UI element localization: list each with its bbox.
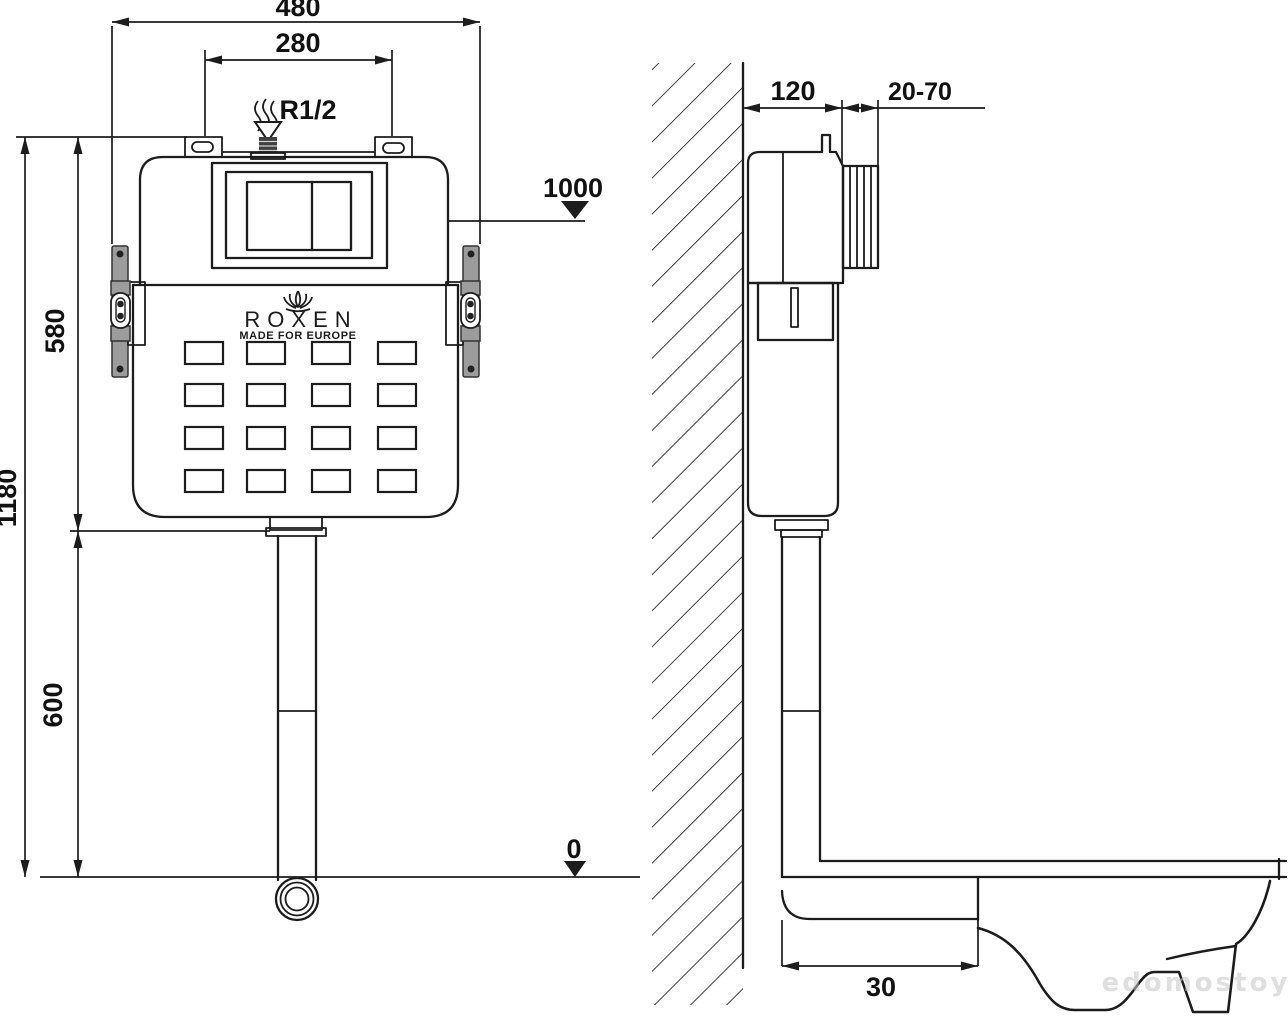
rib bbox=[185, 427, 223, 449]
dim-below-tank-label: 600 bbox=[38, 682, 68, 727]
dim-frame-depth: 120 bbox=[743, 76, 842, 163]
brand-block: ROXEN MADE FOR EUROPE bbox=[239, 291, 357, 342]
dim-panel-adjust: 20-70 bbox=[842, 78, 985, 165]
installation-drawing: 0 480 280 bbox=[0, 0, 1288, 1017]
cistern-profile bbox=[748, 135, 878, 877]
tank-lower-profile bbox=[748, 283, 838, 516]
dim-tank-height-label: 580 bbox=[40, 308, 70, 353]
floor-level-label: 0 bbox=[566, 834, 581, 864]
drawing-page: 0 480 280 bbox=[0, 0, 1288, 1017]
service-slot bbox=[791, 288, 798, 327]
floor-level-marker-icon bbox=[564, 861, 586, 877]
pipe-elbow-outlet bbox=[276, 878, 318, 920]
rail-bolt-hole bbox=[468, 251, 475, 258]
floor-level: 0 bbox=[40, 834, 640, 877]
inlet-thread-label: R1/2 bbox=[279, 95, 336, 125]
level-marker-panel: 1000 bbox=[448, 173, 603, 221]
wall-section bbox=[652, 63, 743, 1005]
rib bbox=[185, 470, 223, 492]
dim-drain-offset: 30 bbox=[782, 920, 978, 1002]
dim-frame-depth-label: 120 bbox=[770, 76, 815, 106]
rib bbox=[247, 427, 285, 449]
tank-upper-body bbox=[140, 157, 448, 285]
rib bbox=[378, 427, 416, 449]
front-view: 0 480 280 bbox=[0, 0, 640, 920]
rib bbox=[312, 470, 350, 492]
rib bbox=[378, 342, 416, 364]
pipe-collar bbox=[775, 520, 828, 530]
rib bbox=[247, 342, 285, 364]
access-panel-frame bbox=[212, 163, 387, 268]
outlet-pipe bbox=[782, 859, 1286, 920]
mounting-slot bbox=[192, 142, 213, 152]
mounting-rail-right bbox=[446, 246, 480, 377]
rib bbox=[185, 384, 223, 406]
dim-panel-adjust-label: 20-70 bbox=[888, 78, 952, 106]
side-view: 120 20-70 bbox=[652, 63, 1288, 1012]
wall-hatching bbox=[652, 63, 743, 1005]
rib bbox=[247, 470, 285, 492]
rail-bolt-hole bbox=[117, 251, 124, 258]
dim-overall-height-label: 1180 bbox=[0, 469, 22, 528]
brand-tagline: MADE FOR EUROPE bbox=[239, 330, 356, 342]
level-marker-icon bbox=[561, 201, 589, 219]
watermark-text: edomostoy bbox=[1102, 968, 1288, 998]
level-panel-label: 1000 bbox=[543, 173, 603, 203]
rib bbox=[247, 384, 285, 406]
service-window bbox=[758, 283, 833, 340]
cistern-tank: ROXEN MADE FOR EUROPE bbox=[133, 137, 458, 920]
rib bbox=[185, 342, 223, 364]
mounting-tab-right bbox=[375, 137, 412, 157]
dim-overall-width-label: 480 bbox=[275, 0, 320, 22]
brand-logo-text: ROXEN bbox=[244, 307, 357, 332]
rib bbox=[312, 384, 350, 406]
dim-tank-height: 580 bbox=[40, 137, 270, 531]
dim-overall-height: 1180 bbox=[0, 137, 187, 877]
rail-bolt-hole bbox=[117, 366, 124, 373]
flush-plate bbox=[247, 182, 351, 250]
rib bbox=[378, 470, 416, 492]
bowl-rim-line bbox=[1167, 946, 1236, 959]
tank-upper-profile bbox=[748, 135, 843, 283]
dim-drain-offset-label: 30 bbox=[866, 972, 896, 1002]
drain-bend bbox=[782, 891, 978, 919]
rib bbox=[312, 342, 350, 364]
mounting-slot bbox=[383, 143, 404, 153]
rail-bolt-hole bbox=[468, 366, 475, 373]
water-inlet: R1/2 bbox=[251, 95, 337, 159]
rib bbox=[312, 427, 350, 449]
rib-grid bbox=[185, 342, 416, 492]
mounting-tab-left bbox=[185, 137, 222, 157]
drain-pipe-front bbox=[266, 517, 326, 920]
dim-bolt-spacing-label: 280 bbox=[275, 28, 320, 58]
dim-below-tank: 600 bbox=[38, 531, 83, 877]
rib bbox=[378, 384, 416, 406]
adjustable-spacer bbox=[843, 166, 878, 268]
